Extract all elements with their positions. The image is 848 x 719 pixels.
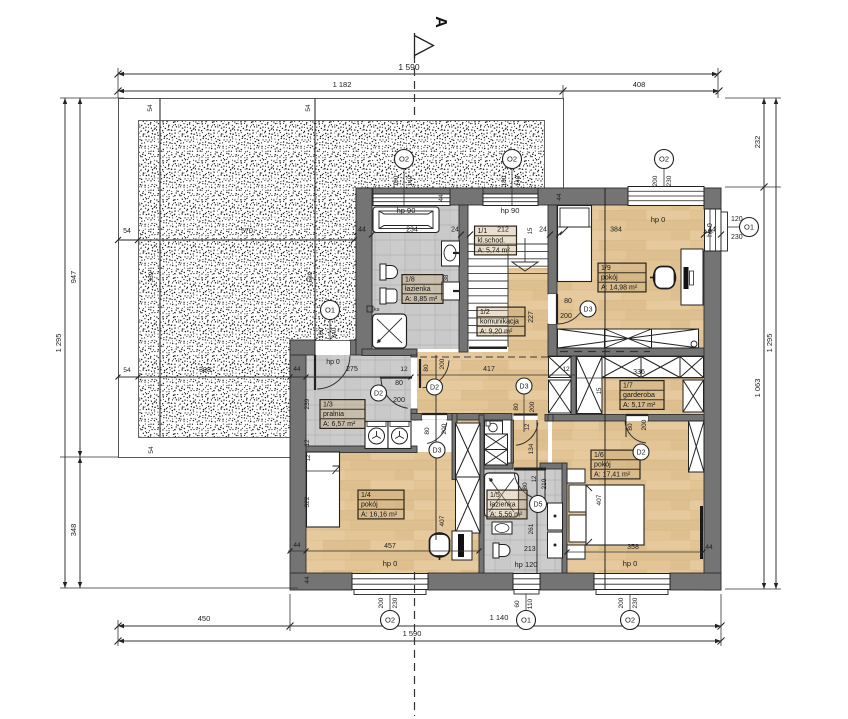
svg-text:1/1: 1/1 — [478, 228, 488, 235]
svg-text:213: 213 — [524, 546, 536, 553]
svg-text:339: 339 — [148, 271, 155, 282]
svg-text:A: A — [432, 16, 449, 28]
svg-text:200: 200 — [618, 597, 625, 608]
svg-text:398: 398 — [199, 367, 211, 374]
svg-text:200: 200 — [378, 597, 385, 608]
svg-text:hp 0: hp 0 — [383, 559, 398, 568]
svg-text:200: 200 — [529, 401, 536, 412]
svg-text:54: 54 — [305, 104, 312, 112]
svg-text:80: 80 — [627, 423, 634, 431]
svg-text:1 063: 1 063 — [753, 379, 762, 398]
svg-text:O1: O1 — [744, 223, 754, 232]
svg-text:12: 12 — [306, 454, 312, 461]
svg-text:44: 44 — [703, 229, 711, 236]
svg-text:407: 407 — [439, 515, 446, 526]
svg-text:180: 180 — [393, 175, 400, 186]
svg-text:ks: ks — [374, 307, 380, 313]
svg-text:200: 200 — [560, 313, 572, 320]
svg-text:239: 239 — [304, 398, 311, 409]
svg-text:łazienka: łazienka — [490, 502, 516, 509]
svg-text:200: 200 — [439, 358, 446, 369]
svg-text:1/3: 1/3 — [323, 402, 333, 409]
svg-text:457: 457 — [384, 543, 396, 550]
svg-text:947: 947 — [69, 271, 78, 284]
svg-text:140: 140 — [407, 175, 414, 186]
svg-text:A: 17,41 m²: A: 17,41 m² — [594, 471, 631, 478]
svg-text:O2: O2 — [659, 155, 669, 164]
svg-text:D2: D2 — [637, 450, 646, 457]
svg-text:450: 450 — [198, 614, 211, 623]
svg-text:54: 54 — [123, 367, 131, 374]
svg-text:227: 227 — [528, 311, 535, 323]
svg-text:230: 230 — [632, 597, 639, 608]
svg-text:hp 120: hp 120 — [515, 560, 538, 569]
svg-text:garderoba: garderoba — [623, 392, 655, 399]
svg-text:D2: D2 — [374, 391, 383, 398]
svg-text:200: 200 — [393, 397, 405, 404]
svg-text:A: 14,98 m²: A: 14,98 m² — [601, 284, 638, 291]
svg-text:1/6: 1/6 — [594, 452, 604, 459]
svg-text:44: 44 — [438, 194, 445, 202]
svg-text:pralnia: pralnia — [323, 411, 344, 418]
svg-text:1/2: 1/2 — [480, 309, 490, 316]
svg-text:580: 580 — [307, 271, 314, 282]
svg-text:80: 80 — [424, 427, 431, 435]
svg-text:348: 348 — [69, 524, 78, 537]
svg-text:1 590: 1 590 — [403, 629, 422, 638]
svg-text:417: 417 — [483, 366, 495, 373]
svg-text:12: 12 — [562, 366, 570, 373]
svg-text:hp 0: hp 0 — [623, 559, 638, 568]
svg-text:A: 5,56 m²: A: 5,56 m² — [490, 511, 523, 518]
svg-text:15: 15 — [528, 227, 534, 234]
svg-text:54: 54 — [147, 104, 154, 112]
svg-text:408: 408 — [633, 80, 646, 89]
svg-text:1 590: 1 590 — [398, 62, 420, 72]
svg-text:200: 200 — [441, 423, 448, 434]
svg-text:24: 24 — [451, 227, 459, 234]
svg-text:275: 275 — [346, 366, 358, 373]
svg-text:1 182: 1 182 — [333, 80, 352, 89]
svg-text:pokój: pokój — [601, 275, 618, 282]
svg-text:komunikacja: komunikacja — [480, 319, 519, 326]
svg-text:15: 15 — [597, 387, 603, 394]
svg-text:570: 570 — [241, 228, 253, 235]
svg-text:44: 44 — [556, 193, 563, 201]
svg-text:D3: D3 — [584, 307, 593, 314]
svg-text:358: 358 — [627, 544, 639, 551]
svg-text:336: 336 — [633, 369, 645, 376]
svg-text:12: 12 — [304, 439, 311, 447]
svg-text:O2: O2 — [507, 155, 517, 164]
svg-text:O1: O1 — [521, 616, 531, 625]
svg-text:44: 44 — [293, 542, 301, 549]
svg-text:1/5: 1/5 — [490, 492, 500, 499]
svg-text:D5: D5 — [534, 502, 543, 509]
svg-text:54: 54 — [123, 228, 131, 235]
svg-text:hp 90: hp 90 — [397, 206, 416, 215]
svg-text:44: 44 — [293, 366, 301, 373]
svg-text:12: 12 — [532, 475, 538, 482]
svg-text:A: 8,85 m²: A: 8,85 m² — [405, 296, 438, 303]
svg-text:1 140: 1 140 — [490, 613, 509, 622]
svg-text:240: 240 — [331, 327, 338, 338]
svg-text:1 295: 1 295 — [765, 334, 774, 353]
svg-text:322: 322 — [304, 496, 311, 507]
svg-text:A: 6,57 m²: A: 6,57 m² — [323, 421, 356, 428]
svg-text:kl.schod.: kl.schod. — [478, 238, 506, 245]
svg-text:212: 212 — [497, 227, 509, 234]
svg-text:54: 54 — [148, 446, 155, 454]
svg-text:pokój: pokój — [361, 502, 378, 509]
svg-text:44: 44 — [304, 576, 311, 584]
svg-text:A: 9,20 m²: A: 9,20 m² — [480, 328, 513, 335]
svg-text:O1: O1 — [325, 306, 335, 315]
svg-text:D3: D3 — [433, 448, 442, 455]
svg-text:80: 80 — [423, 364, 430, 372]
svg-text:hp 0: hp 0 — [326, 359, 340, 366]
svg-text:230: 230 — [731, 234, 743, 241]
svg-text:80: 80 — [522, 482, 529, 490]
svg-text:38: 38 — [444, 274, 450, 281]
svg-text:234: 234 — [406, 227, 418, 234]
svg-text:140: 140 — [515, 175, 522, 186]
svg-text:200: 200 — [652, 175, 659, 186]
svg-text:O2: O2 — [625, 616, 635, 625]
svg-text:80: 80 — [395, 380, 403, 387]
svg-text:hp 90: hp 90 — [501, 206, 520, 215]
svg-text:1/9: 1/9 — [601, 265, 611, 272]
svg-text:180: 180 — [501, 175, 508, 186]
svg-text:A: 16,16 m²: A: 16,16 m² — [361, 511, 398, 518]
svg-text:232: 232 — [753, 136, 762, 149]
svg-text:1/7: 1/7 — [623, 383, 633, 390]
svg-text:24: 24 — [539, 227, 547, 234]
svg-text:384: 384 — [610, 227, 622, 234]
svg-text:12: 12 — [400, 366, 408, 373]
svg-text:80: 80 — [564, 298, 572, 305]
svg-text:1/4: 1/4 — [361, 492, 371, 499]
svg-text:60: 60 — [514, 600, 521, 608]
svg-text:łazienka: łazienka — [405, 286, 431, 293]
svg-text:230: 230 — [666, 175, 673, 186]
svg-text:200: 200 — [641, 419, 648, 430]
svg-text:D2: D2 — [430, 385, 439, 392]
svg-text:134: 134 — [528, 443, 535, 454]
svg-text:O2: O2 — [385, 616, 395, 625]
svg-text:210: 210 — [541, 478, 548, 489]
svg-text:1 295: 1 295 — [54, 334, 63, 353]
svg-text:230: 230 — [392, 597, 399, 608]
svg-text:44: 44 — [358, 227, 366, 234]
svg-text:hp 0: hp 0 — [651, 215, 666, 224]
svg-text:1/8: 1/8 — [405, 277, 415, 284]
svg-text:261: 261 — [528, 523, 535, 534]
svg-text:D3: D3 — [520, 384, 529, 391]
svg-text:110: 110 — [527, 598, 534, 609]
svg-text:A: 5,74 m²: A: 5,74 m² — [478, 247, 511, 254]
svg-text:O2: O2 — [399, 155, 409, 164]
svg-text:407: 407 — [596, 494, 603, 505]
svg-text:pokój: pokój — [594, 462, 611, 469]
svg-text:12: 12 — [525, 423, 531, 430]
svg-text:44: 44 — [705, 544, 713, 551]
svg-text:A: 5,17 m²: A: 5,17 m² — [623, 402, 656, 409]
svg-text:100: 100 — [318, 327, 325, 338]
svg-text:80: 80 — [513, 403, 520, 411]
